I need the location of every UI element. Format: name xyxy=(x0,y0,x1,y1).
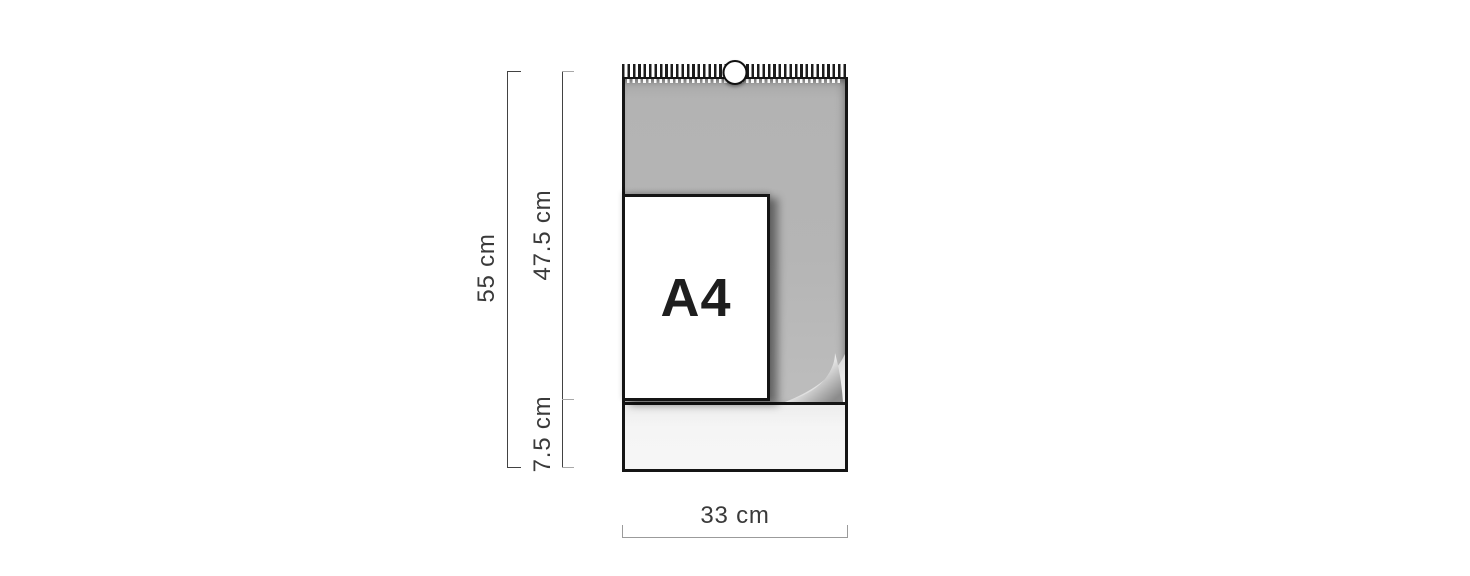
dimension-tick-lower-bottom xyxy=(562,467,574,468)
dimension-tick-upper-bottom xyxy=(562,399,574,400)
dimension-line-split-height xyxy=(562,71,563,468)
page-curl-icon xyxy=(783,352,845,402)
dimension-label-upper-height: 47.5 cm xyxy=(529,190,557,281)
dimension-tick-total-top xyxy=(507,71,521,72)
dimension-label-width: 33 cm xyxy=(700,502,769,530)
a4-sheet: A4 xyxy=(622,194,770,401)
a4-label: A4 xyxy=(660,271,731,325)
dimension-line-width xyxy=(622,537,848,538)
calendar-footer-strip xyxy=(622,402,848,472)
dimension-tick-width-left xyxy=(622,525,623,537)
dimension-tick-total-bottom xyxy=(507,467,521,468)
hanger-hole-icon xyxy=(723,60,748,85)
dimension-tick-upper-top xyxy=(562,71,574,72)
dimension-tick-width-right xyxy=(847,525,848,537)
dimension-label-lower-height: 7.5 cm xyxy=(529,396,557,473)
dimension-diagram: 55 cm 47.5 cm 7.5 cm 33 cm xyxy=(0,0,1470,576)
dimension-line-total-height xyxy=(507,71,508,468)
dimension-label-total-height: 55 cm xyxy=(473,233,501,302)
